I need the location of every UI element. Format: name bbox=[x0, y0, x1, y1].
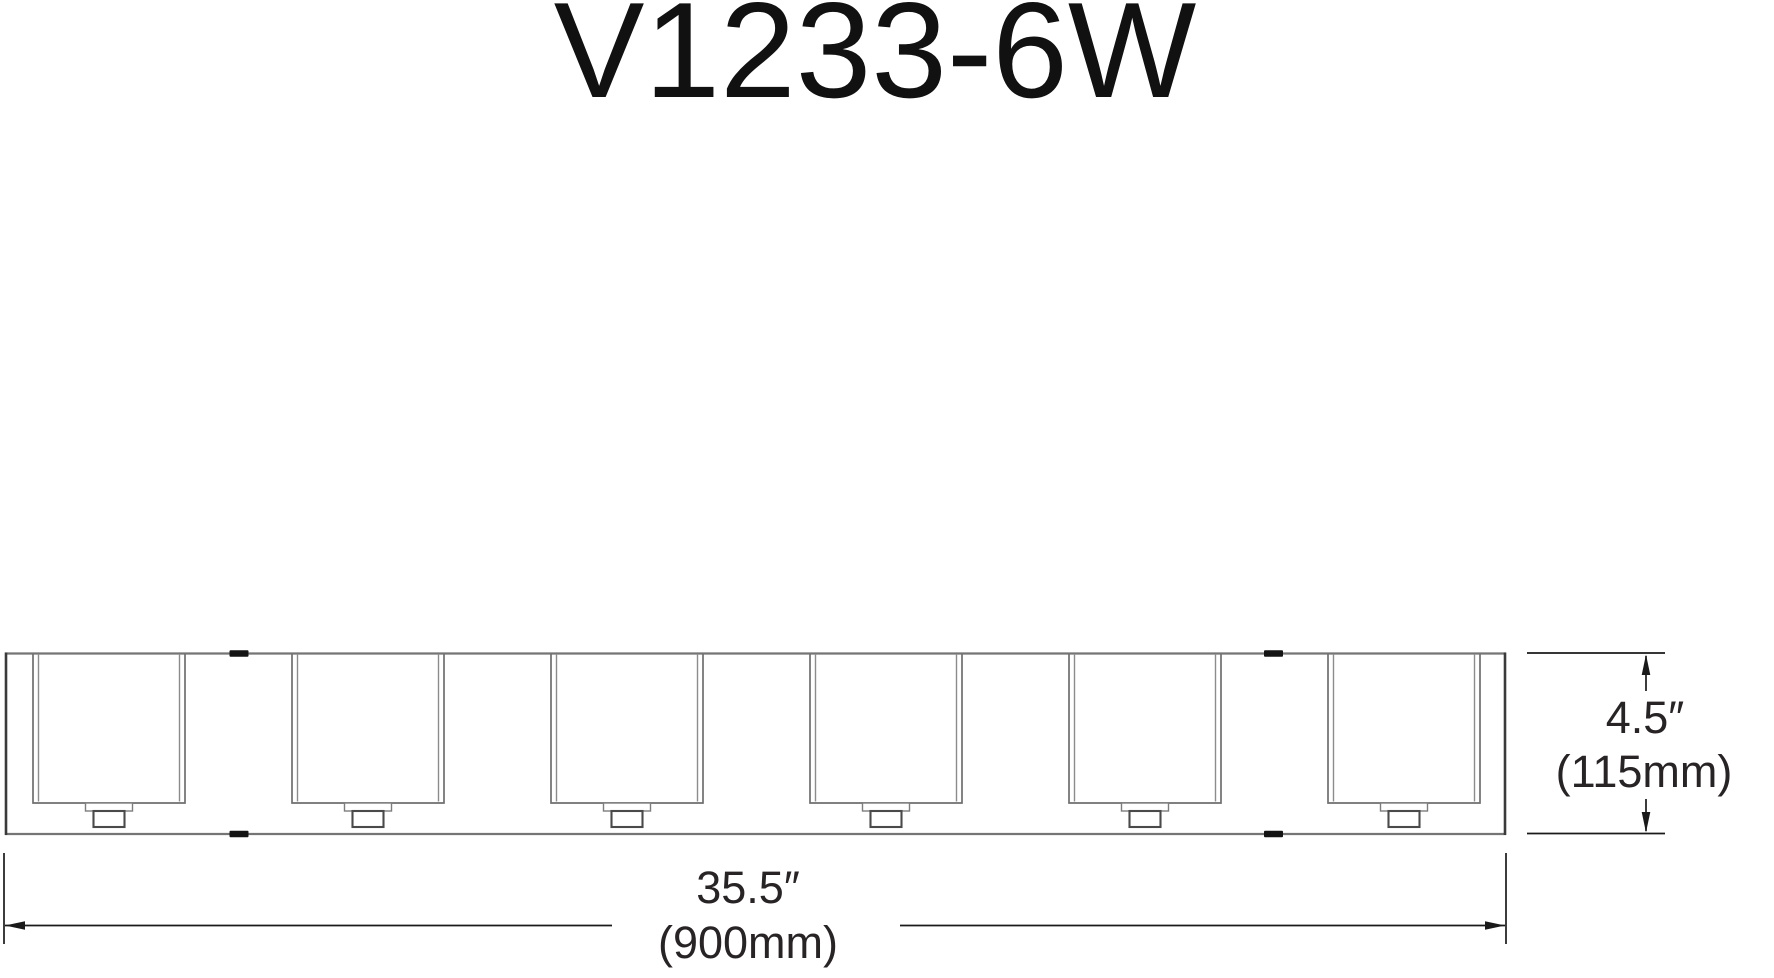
shades-layer bbox=[33, 654, 1480, 827]
socket-collar bbox=[863, 803, 910, 811]
shade-outline bbox=[33, 654, 185, 803]
socket-collar bbox=[345, 803, 392, 811]
arrow-up-icon bbox=[1642, 655, 1651, 676]
socket-body bbox=[353, 811, 384, 827]
mounting-tick bbox=[1264, 831, 1283, 838]
socket-collar bbox=[1381, 803, 1428, 811]
socket-body bbox=[94, 811, 125, 827]
socket-body bbox=[871, 811, 902, 827]
height-mm-label: (115mm) bbox=[1556, 746, 1733, 797]
socket-body bbox=[612, 811, 643, 827]
shade-outline bbox=[1069, 654, 1221, 803]
arrow-left-icon bbox=[5, 921, 25, 930]
shade-outline bbox=[1328, 654, 1480, 803]
socket-collar bbox=[604, 803, 651, 811]
shade-outline bbox=[551, 654, 703, 803]
height-inches-label: 4.5″ bbox=[1606, 692, 1685, 743]
drawing-page: V1233-6W 35.5″ (900mm) bbox=[0, 0, 1774, 978]
glass-shade bbox=[810, 654, 962, 827]
socket-body bbox=[1389, 811, 1420, 827]
glass-shade bbox=[1328, 654, 1480, 827]
width-mm-label: (900mm) bbox=[658, 917, 838, 968]
glass-shade bbox=[33, 654, 185, 827]
width-dimension: 35.5″ (900mm) bbox=[4, 853, 1506, 968]
arrow-right-icon bbox=[1485, 921, 1505, 930]
socket-collar bbox=[1122, 803, 1169, 811]
socket-collar bbox=[86, 803, 133, 811]
mounting-tick bbox=[1264, 650, 1283, 657]
mounting-tick bbox=[230, 650, 249, 657]
arrow-down-icon bbox=[1642, 812, 1651, 833]
height-dimension: 4.5″ (115mm) bbox=[1527, 653, 1732, 834]
glass-shade bbox=[551, 654, 703, 827]
fixture-dimension-drawing: 35.5″ (900mm) 4.5″ (115mm) bbox=[0, 0, 1774, 978]
mounting-tick bbox=[230, 831, 249, 838]
shade-outline bbox=[292, 654, 444, 803]
shade-outline bbox=[810, 654, 962, 803]
width-inches-label: 35.5″ bbox=[696, 862, 800, 913]
glass-shade bbox=[1069, 654, 1221, 827]
socket-body bbox=[1130, 811, 1161, 827]
fixture-backplate bbox=[5, 653, 1506, 836]
glass-shade bbox=[292, 654, 444, 827]
